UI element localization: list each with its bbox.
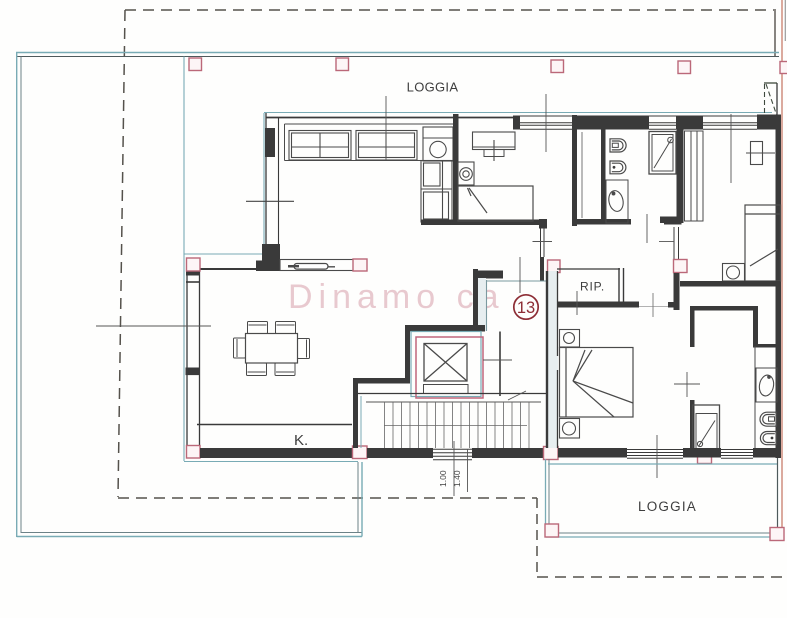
svg-text:Dinamo ca: Dinamo ca [288, 278, 505, 316]
svg-text:1.40: 1.40 [452, 470, 462, 487]
svg-text:LOGGIA: LOGGIA [407, 80, 459, 95]
svg-text:K.: K. [294, 432, 308, 449]
svg-text:LOGGIA: LOGGIA [638, 499, 697, 514]
svg-text:RIP.: RIP. [580, 280, 605, 294]
svg-text:1.00: 1.00 [438, 470, 448, 487]
svg-text:13: 13 [517, 299, 535, 317]
